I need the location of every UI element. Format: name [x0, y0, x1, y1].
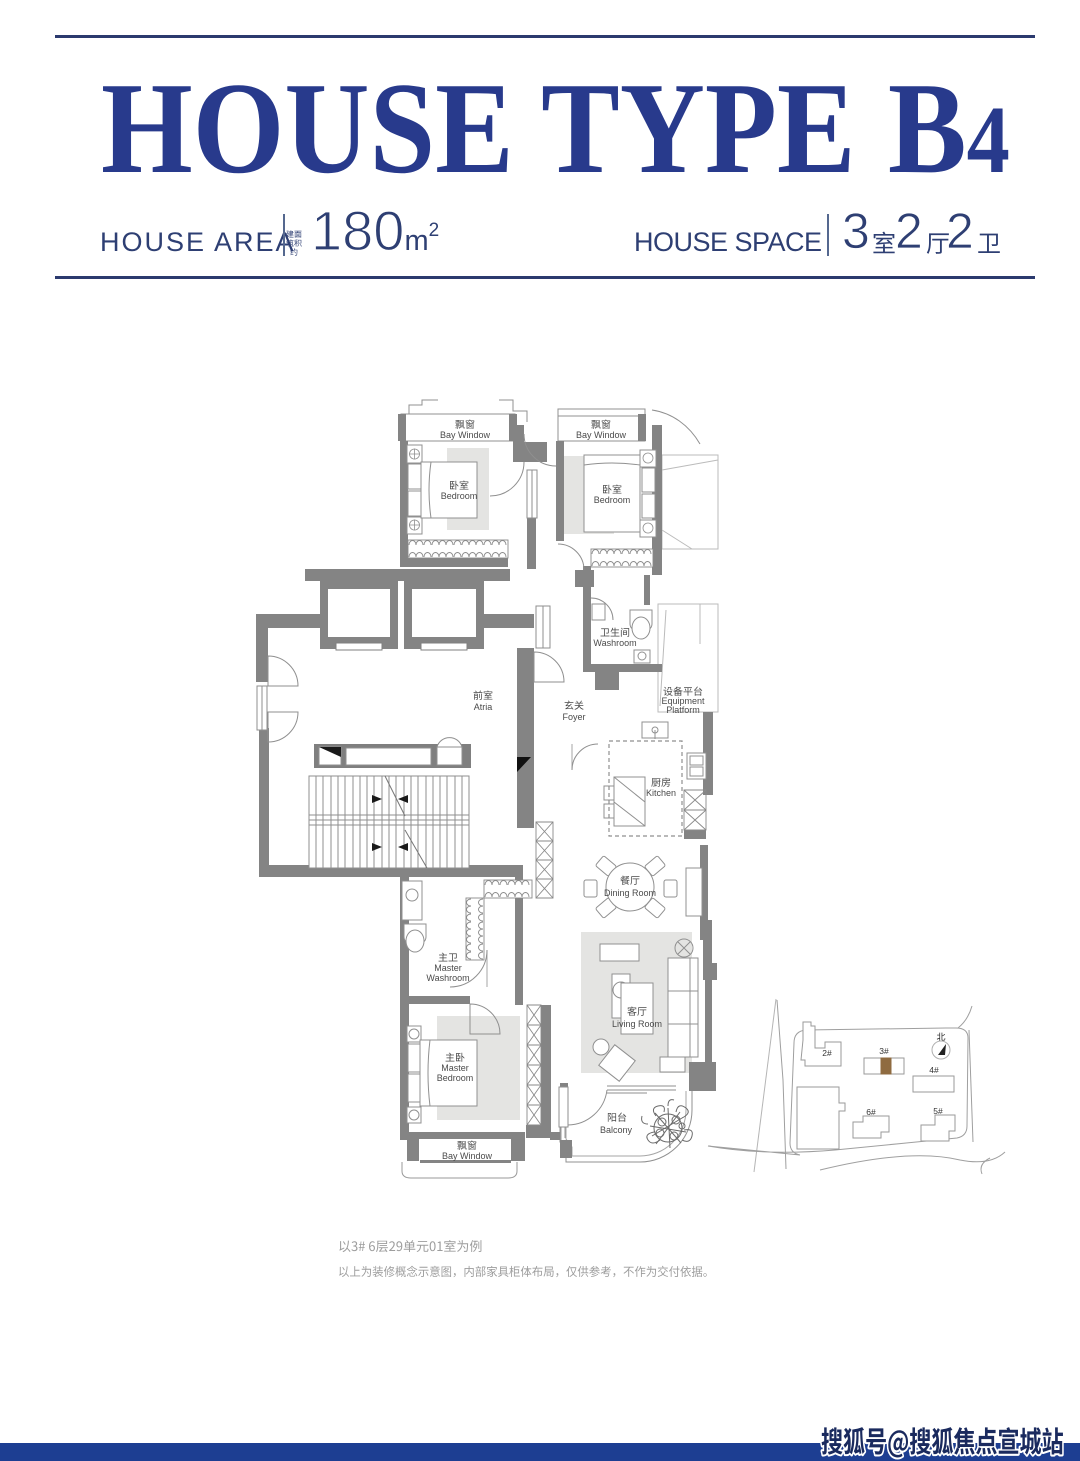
svg-text:Bedroom: Bedroom	[441, 491, 478, 501]
svg-text:Bay Window: Bay Window	[440, 430, 491, 440]
svg-text:Bedroom: Bedroom	[437, 1073, 474, 1083]
svg-text:Washroom: Washroom	[593, 638, 636, 648]
svg-text:2#: 2#	[822, 1048, 832, 1058]
svg-text:Balcony: Balcony	[600, 1125, 633, 1135]
svg-text:Living Room: Living Room	[612, 1019, 662, 1029]
svg-text:Washroom: Washroom	[426, 973, 469, 983]
svg-text:Bay Window: Bay Window	[442, 1151, 493, 1161]
svg-text:Foyer: Foyer	[562, 712, 585, 722]
svg-text:Master: Master	[434, 963, 462, 973]
svg-text:Bay Window: Bay Window	[576, 430, 627, 440]
svg-text:Platform: Platform	[666, 705, 700, 715]
svg-text:4#: 4#	[929, 1065, 939, 1075]
svg-text:5#: 5#	[933, 1106, 943, 1116]
svg-text:Kitchen: Kitchen	[646, 788, 676, 798]
svg-text:Dining Room: Dining Room	[604, 888, 656, 898]
svg-text:Master: Master	[441, 1063, 469, 1073]
svg-text:Bedroom: Bedroom	[594, 495, 631, 505]
svg-text:3#: 3#	[879, 1046, 889, 1056]
svg-text:6#: 6#	[866, 1107, 876, 1117]
svg-text:Atria: Atria	[474, 702, 493, 712]
